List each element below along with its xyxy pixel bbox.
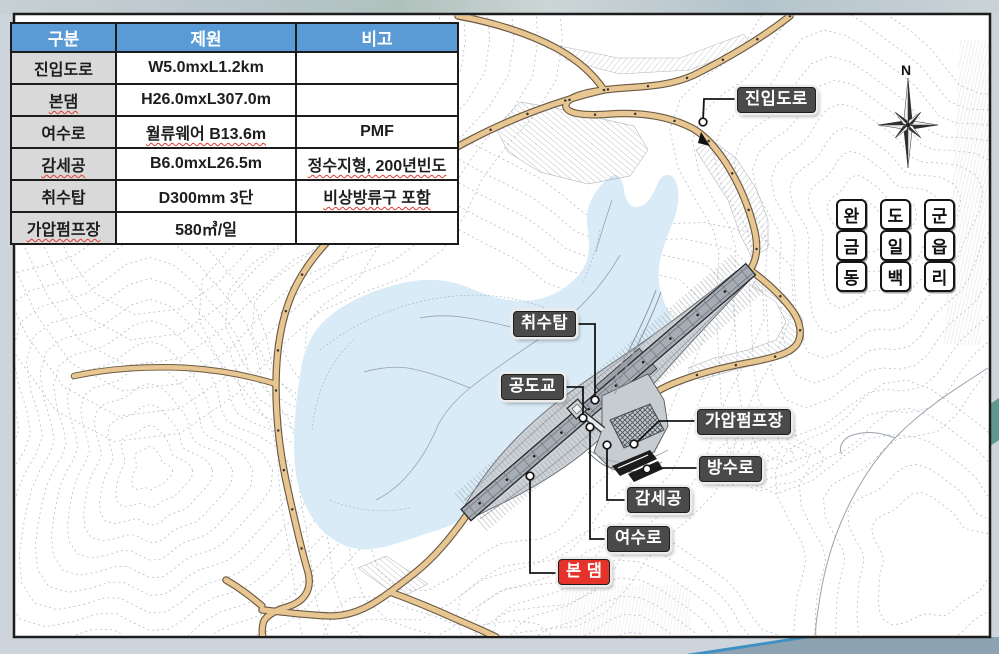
location-name-row: 완 도 군 [836, 199, 955, 230]
callout-pump-station: 가압펌프장 [697, 409, 791, 435]
callout-intake-tower: 취수탑 [513, 311, 576, 337]
location-name-box: 리 [924, 261, 955, 292]
location-name-box: 도 [880, 199, 911, 230]
callout-energy-dissipator: 감세공 [627, 487, 690, 513]
table-row: 진입도로 W5.0mxL1.2km [11, 52, 458, 84]
table-row: 취수탑 D300mm 3단 비상방류구 포함 [11, 180, 458, 212]
callout-spillway: 여수로 [607, 526, 670, 552]
location-name-row: 금 일 읍 [836, 230, 955, 261]
spec-table: 구분 제원 비고 진입도로 W5.0mxL1.2km 본댐 H26.0mxL30… [10, 22, 459, 245]
location-name-box: 백 [880, 261, 911, 292]
spec-cell: 진입도로 [11, 52, 116, 84]
slide: 구분 제원 비고 진입도로 W5.0mxL1.2km 본댐 H26.0mxL30… [0, 0, 999, 654]
spec-cell: D300mm 3단 [116, 180, 296, 212]
location-name-box: 동 [836, 261, 867, 292]
spec-cell: 여수로 [11, 116, 116, 148]
spec-cell: 580㎥/일 [116, 212, 296, 244]
right-margin-ribbon [990, 398, 999, 446]
callout-main-dam: 본 댐 [558, 559, 610, 585]
spec-cell: 월류웨어 B13.6m [116, 116, 296, 148]
col-header-category: 구분 [11, 23, 116, 52]
table-row: 감세공 B6.0mxL26.5m 정수지형, 200년빈도 [11, 148, 458, 180]
callout-access-road: 진입도로 [737, 87, 816, 113]
spec-cell: 감세공 [11, 148, 116, 180]
callout-maintenance-bridge: 공도교 [501, 374, 564, 400]
spec-cell: W5.0mxL1.2km [116, 52, 296, 84]
dense-contour-bottom [560, 585, 690, 637]
spec-cell: 비상방류구 포함 [296, 180, 458, 212]
table-row: 본댐 H26.0mxL307.0m [11, 84, 458, 116]
col-header-spec: 제원 [116, 23, 296, 52]
spec-cell: 본댐 [11, 84, 116, 116]
top-photo-strip [0, 0, 999, 14]
spec-cell: PMF [296, 116, 458, 148]
spec-cell: H26.0mxL307.0m [116, 84, 296, 116]
spec-cell: 가압펌프장 [11, 212, 116, 244]
callout-outlet-channel: 방수로 [699, 456, 762, 482]
location-name-row: 동 백 리 [836, 261, 955, 292]
table-row: 여수로 월류웨어 B13.6m PMF [11, 116, 458, 148]
spec-cell: 정수지형, 200년빈도 [296, 148, 458, 180]
table-header-row: 구분 제원 비고 [11, 23, 458, 52]
spec-cell [296, 84, 458, 116]
location-name-box: 군 [924, 199, 955, 230]
compass-north-label: N [901, 62, 911, 78]
spec-cell [296, 52, 458, 84]
location-name-box: 일 [880, 230, 911, 261]
table-row: 가압펌프장 580㎥/일 [11, 212, 458, 244]
location-name-box: 금 [836, 230, 867, 261]
col-header-remark: 비고 [296, 23, 458, 52]
spec-cell [296, 212, 458, 244]
spec-cell: 취수탑 [11, 180, 116, 212]
spec-cell: B6.0mxL26.5m [116, 148, 296, 180]
location-name-box: 읍 [924, 230, 955, 261]
location-name-box: 완 [836, 199, 867, 230]
